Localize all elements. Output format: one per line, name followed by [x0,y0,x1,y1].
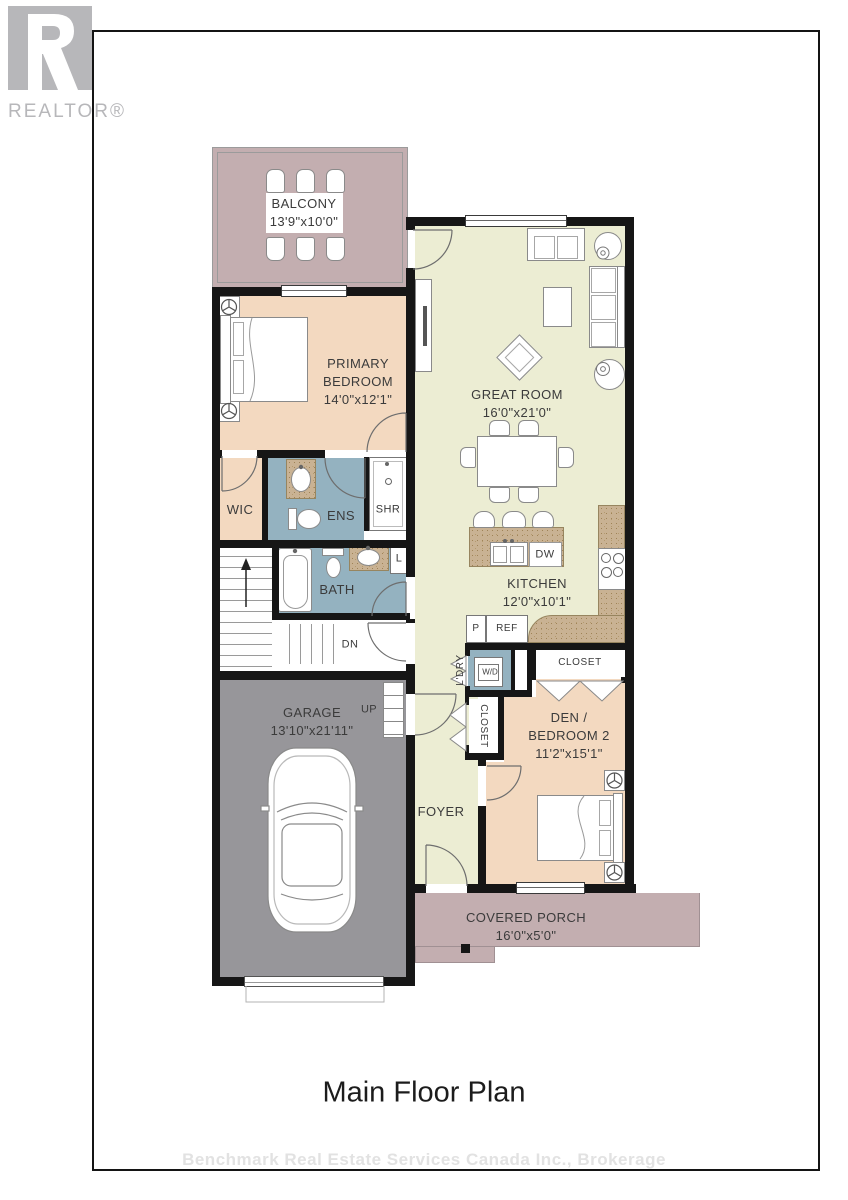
wall [272,613,410,620]
room-dims: 16'0"x21'0" [471,404,563,422]
room-name: COVERED PORCH [466,910,586,925]
counter-bottom [528,615,625,643]
dining-table [477,436,557,487]
burner [613,567,623,577]
pillow [233,360,244,394]
room-name: KITCHEN [507,576,567,591]
bath-toilet-tank [322,548,344,556]
wall [478,760,486,766]
wic-floor [220,458,262,540]
driveway-outline [246,986,384,1002]
window [516,882,585,894]
label-dishwasher: DW [535,547,554,562]
wall [345,287,414,296]
room-name: PRIMARY BEDROOM [323,356,393,389]
ens-sink [291,467,311,492]
appliance-name: W/D [482,667,498,676]
wall [565,217,634,226]
porch-post [461,944,470,953]
wall [408,217,467,226]
wall [382,977,415,986]
balcony-chair [266,237,285,261]
nightstand [604,770,625,791]
bar-stool [473,511,495,528]
sink-basin [493,546,507,563]
floor-plan-page: BALCONY 13'9"x10'0" PRIMARY BEDROOM 14'0… [0,0,848,1200]
wall [212,287,283,296]
wall [465,745,469,753]
den-floor-a [536,679,625,699]
wall [465,643,634,650]
end-table [594,359,625,390]
wall [583,884,636,893]
bath-sink [357,549,380,566]
burner [613,553,624,564]
utility-nook [515,650,527,695]
garage-steps [383,682,404,738]
room-label-linen: L [396,551,403,566]
room-label-primary-bedroom: PRIMARY BEDROOM 14'0"x12'1" [304,355,412,409]
wall [406,680,415,694]
label-washer-dryer: W/D [482,666,498,677]
room-label-shr: SHR [376,502,400,517]
room-name: GREAT ROOM [471,387,563,402]
wall [478,806,486,884]
dining-chair [518,487,539,503]
dining-chair [489,487,510,503]
coffee-table [543,287,572,327]
room-label-garage: GARAGE 13'10"x21'11" [271,704,354,740]
realtor-wordmark: REALTOR® [8,101,126,123]
wall [465,690,531,697]
brokerage-watermark: Benchmark Real Estate Services Canada In… [182,1150,666,1170]
wall [212,679,220,985]
balcony-chair [266,169,285,193]
room-label-kitchen: KITCHEN 12'0"x10'1" [503,575,571,611]
room-name: GARAGE [283,705,341,720]
wall [212,287,220,679]
room-label-porch: COVERED PORCH 16'0"x5'0" [466,909,586,945]
balcony-chair [326,169,345,193]
dining-chair [489,420,510,436]
pillow [599,800,611,826]
ensuite-floor [268,458,364,540]
room-dims: 11'2"x15'1" [517,745,621,763]
bath-toilet-bowl [326,557,341,578]
room-label-great-room: GREAT ROOM 16'0"x21'0" [471,386,563,422]
window [465,215,567,227]
wall [212,450,222,458]
room-name: SHR [376,503,400,515]
nightstand [604,862,625,883]
wall [364,457,369,531]
headboard [613,793,623,863]
sofa-back [617,266,625,348]
room-dims: 13'10"x21'11" [271,722,354,740]
room-label-closet-den: CLOSET [558,656,602,670]
wall [262,456,268,544]
pillow [599,830,611,856]
bathtub-basin [283,555,308,609]
room-label-foyer: FOYER [418,803,465,821]
plan-title: Main Floor Plan [322,1077,525,1110]
room-name: L'DRY [455,654,466,685]
room-name: FOYER [418,804,465,819]
appliance-name: P [472,623,479,634]
wall [621,677,631,683]
label-dn: DN [342,637,359,652]
ens-toilet-tank [288,508,297,530]
dining-chair [558,447,574,468]
balcony-chair [326,237,345,261]
loveseat-cushion [534,236,555,259]
stairs-upper-run [218,546,272,671]
room-name: CLOSET [478,704,489,748]
wall [530,646,536,680]
wall [212,540,408,548]
sofa-cushion [591,268,616,293]
sofa-cushion [591,295,616,320]
wall [212,977,246,986]
room-name: L [396,552,403,564]
porch-floor-b [415,947,495,963]
sink-basin [510,546,524,563]
wall [498,697,504,759]
dining-chair [518,420,539,436]
wall [212,671,414,680]
tv [423,306,427,346]
appliance-name: DW [535,548,554,560]
appliance-name: REF [496,623,518,634]
room-name: DEN / BEDROOM 2 [528,710,610,743]
window [281,285,347,297]
headboard [220,315,231,404]
balcony-chair [296,169,315,193]
room-label-closet-foyer: CLOSET [476,704,490,748]
wall [465,753,504,760]
end-table [594,232,622,260]
room-label-wic: WIC [227,501,253,519]
label-pantry: P [472,622,479,636]
burner [601,567,612,578]
wall [406,217,415,230]
ens-toilet-bowl [297,509,321,529]
room-dims: 13'9"x10'0" [270,213,338,231]
realtor-logo: REALTOR® [8,6,126,123]
basement-door [368,623,406,661]
room-dims: 12'0"x10'1" [503,593,571,611]
wall [467,884,479,893]
room-name: ENS [327,508,355,523]
room-name: BALCONY [272,196,337,211]
label-up: UP [361,702,377,717]
room-label-den: DEN / BEDROOM 2 11'2"x15'1" [517,709,621,763]
room-label-laundry: L'DRY [454,654,468,685]
room-name: WIC [227,502,253,517]
wall [625,217,634,893]
realtor-r-icon [8,6,92,92]
wall [406,893,415,963]
bar-stool [502,511,526,528]
wall [479,884,517,893]
wall [406,455,415,577]
den-floor-c [486,762,504,884]
room-name: BATH [319,582,354,597]
wall [272,546,279,613]
room-dims: 14'0"x12'1" [304,391,412,409]
direction: DN [342,638,359,650]
room-name: CLOSET [558,657,602,668]
bar-stool [532,511,554,528]
wall [465,697,469,705]
dining-chair [460,447,476,468]
room-label-bath: BATH [319,581,354,599]
room-label-balcony: BALCONY 13'9"x10'0" [270,195,338,231]
label-fridge: REF [496,622,518,636]
room-dims: 16'0"x5'0" [466,927,586,945]
wall [406,884,426,893]
loveseat-cushion [557,236,578,259]
balcony-chair [296,237,315,261]
direction: UP [361,703,377,715]
pillow [233,322,244,356]
burner [601,553,611,563]
shower-drain [385,478,392,485]
stairs-lower-run [279,624,337,664]
garage-door [244,976,384,987]
sofa-cushion [591,322,616,347]
room-label-ens: ENS [327,507,355,525]
